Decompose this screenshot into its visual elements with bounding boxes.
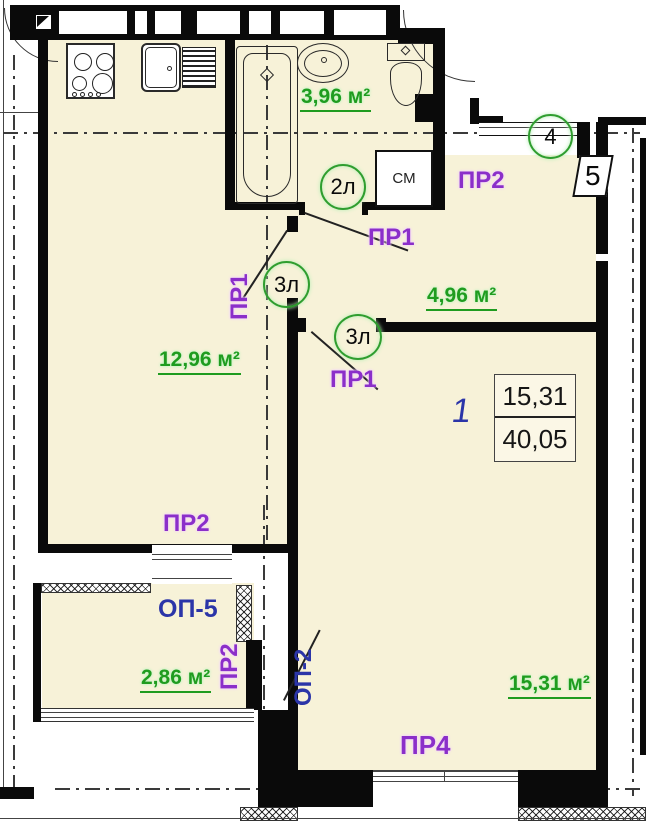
adjacent-wall bbox=[640, 138, 646, 755]
area-label-bathroom: 3,96 м² bbox=[300, 85, 371, 112]
stove-burner bbox=[74, 53, 92, 71]
door-jamb bbox=[296, 318, 306, 332]
window-pane bbox=[195, 9, 242, 36]
balcony-right-wall bbox=[246, 640, 262, 710]
door-circle-2l: 2л bbox=[320, 164, 366, 210]
floor-plan: СМ 2л 3л 3л 4 5 3,96 м² 4,96 м² 12,96 м²… bbox=[0, 0, 646, 824]
balcony-left-wall bbox=[33, 583, 41, 722]
door-label-pr1-top: ПР1 bbox=[368, 224, 415, 252]
door-jamb bbox=[362, 202, 368, 215]
balcony-glazing bbox=[41, 708, 254, 722]
door-label-pr4: ПР4 bbox=[400, 730, 451, 761]
door-label-pr2-balcony-side: ПР2 bbox=[216, 624, 244, 690]
entrance-door-circle: 4 bbox=[528, 114, 573, 159]
kitchen-bottom-wall-left bbox=[38, 544, 152, 553]
entrance-door-circle-label: 4 bbox=[544, 124, 556, 150]
door-label-pr1-side: ПР1 bbox=[226, 256, 254, 320]
wall-stub bbox=[0, 787, 34, 799]
window-pane bbox=[133, 9, 149, 36]
area-label-hallway: 4,96 м² bbox=[426, 284, 497, 311]
wall-joint bbox=[596, 254, 608, 261]
room-bottom-wall-right bbox=[518, 770, 608, 807]
door-label-pr1-room: ПР1 bbox=[330, 366, 377, 394]
kitchen-sink-drain bbox=[167, 66, 172, 71]
divider-jamb bbox=[287, 216, 298, 232]
door-label-pr2-entrance: ПР2 bbox=[458, 167, 505, 195]
bathroom-left-wall bbox=[225, 35, 235, 210]
window-label-op5: ОП-5 bbox=[158, 595, 218, 624]
window-pane bbox=[57, 9, 129, 36]
stove-burner bbox=[96, 53, 114, 71]
stove-burner bbox=[72, 76, 87, 91]
window-pane bbox=[278, 9, 326, 36]
left-wall bbox=[38, 35, 48, 553]
kitchen-room-divider-wall bbox=[287, 298, 298, 553]
wall bbox=[415, 94, 445, 122]
room-window-line bbox=[373, 781, 518, 782]
centerline-left bbox=[13, 55, 15, 800]
window-pane bbox=[153, 9, 183, 36]
centerline-right bbox=[632, 128, 634, 796]
window-label-op2: ОП-2 bbox=[290, 628, 318, 706]
area-label-balcony: 2,86 м² bbox=[140, 666, 211, 693]
threshold-line bbox=[152, 559, 232, 560]
wall-mark-label: 5 bbox=[585, 160, 601, 192]
tick-line bbox=[0, 112, 40, 113]
room-top-wall bbox=[386, 322, 596, 332]
kitchen-sink-inner bbox=[145, 47, 177, 88]
boundary-line-left bbox=[3, 0, 4, 796]
threshold-line bbox=[152, 578, 232, 579]
washing-machine-label: СМ bbox=[392, 170, 415, 187]
room-window-line bbox=[373, 776, 518, 777]
entrance-pier bbox=[577, 122, 590, 158]
centerline-gap bbox=[263, 505, 265, 710]
sink-inner bbox=[304, 50, 342, 77]
apartment-summary-box: 15,31 40,05 bbox=[494, 374, 576, 462]
stove-knob bbox=[80, 92, 85, 97]
window-pane bbox=[247, 9, 273, 36]
stove-burner bbox=[92, 73, 113, 94]
door-circle-3l-a: 3л bbox=[263, 261, 310, 308]
room-window-line bbox=[373, 770, 518, 772]
stove-knob bbox=[88, 92, 93, 97]
room-window-tick bbox=[444, 772, 445, 781]
area-label-living-room: 15,31 м² bbox=[508, 672, 591, 699]
washing-machine: СМ bbox=[375, 150, 433, 207]
door-label-pr2-balcony: ПР2 bbox=[163, 510, 210, 538]
drying-rack bbox=[182, 47, 216, 88]
door-circle-3l-a-label: 3л bbox=[274, 272, 299, 298]
door-circle-3l-b-label: 3л bbox=[345, 324, 370, 350]
door-circle-2l-label: 2л bbox=[330, 174, 355, 200]
door-circle-3l-b: 3л bbox=[334, 314, 382, 360]
balcony-hatched-wall-top bbox=[41, 583, 151, 593]
room-bottom-wall-left bbox=[298, 770, 375, 807]
total-area-value: 40,05 bbox=[495, 418, 575, 461]
area-label-kitchen: 12,96 м² bbox=[158, 348, 241, 375]
bottom-line bbox=[0, 818, 646, 819]
balcony-glazing-line bbox=[41, 717, 254, 718]
apartment-right-wall bbox=[596, 122, 608, 770]
threshold-line bbox=[152, 554, 232, 555]
balcony-glazing-line bbox=[41, 712, 254, 713]
stove-knob bbox=[96, 92, 101, 97]
sink-drain bbox=[321, 57, 327, 63]
room-corner-pier bbox=[258, 710, 298, 807]
stove-knob bbox=[72, 92, 77, 97]
window-pane bbox=[333, 9, 387, 36]
living-area-value: 15,31 bbox=[495, 375, 575, 418]
